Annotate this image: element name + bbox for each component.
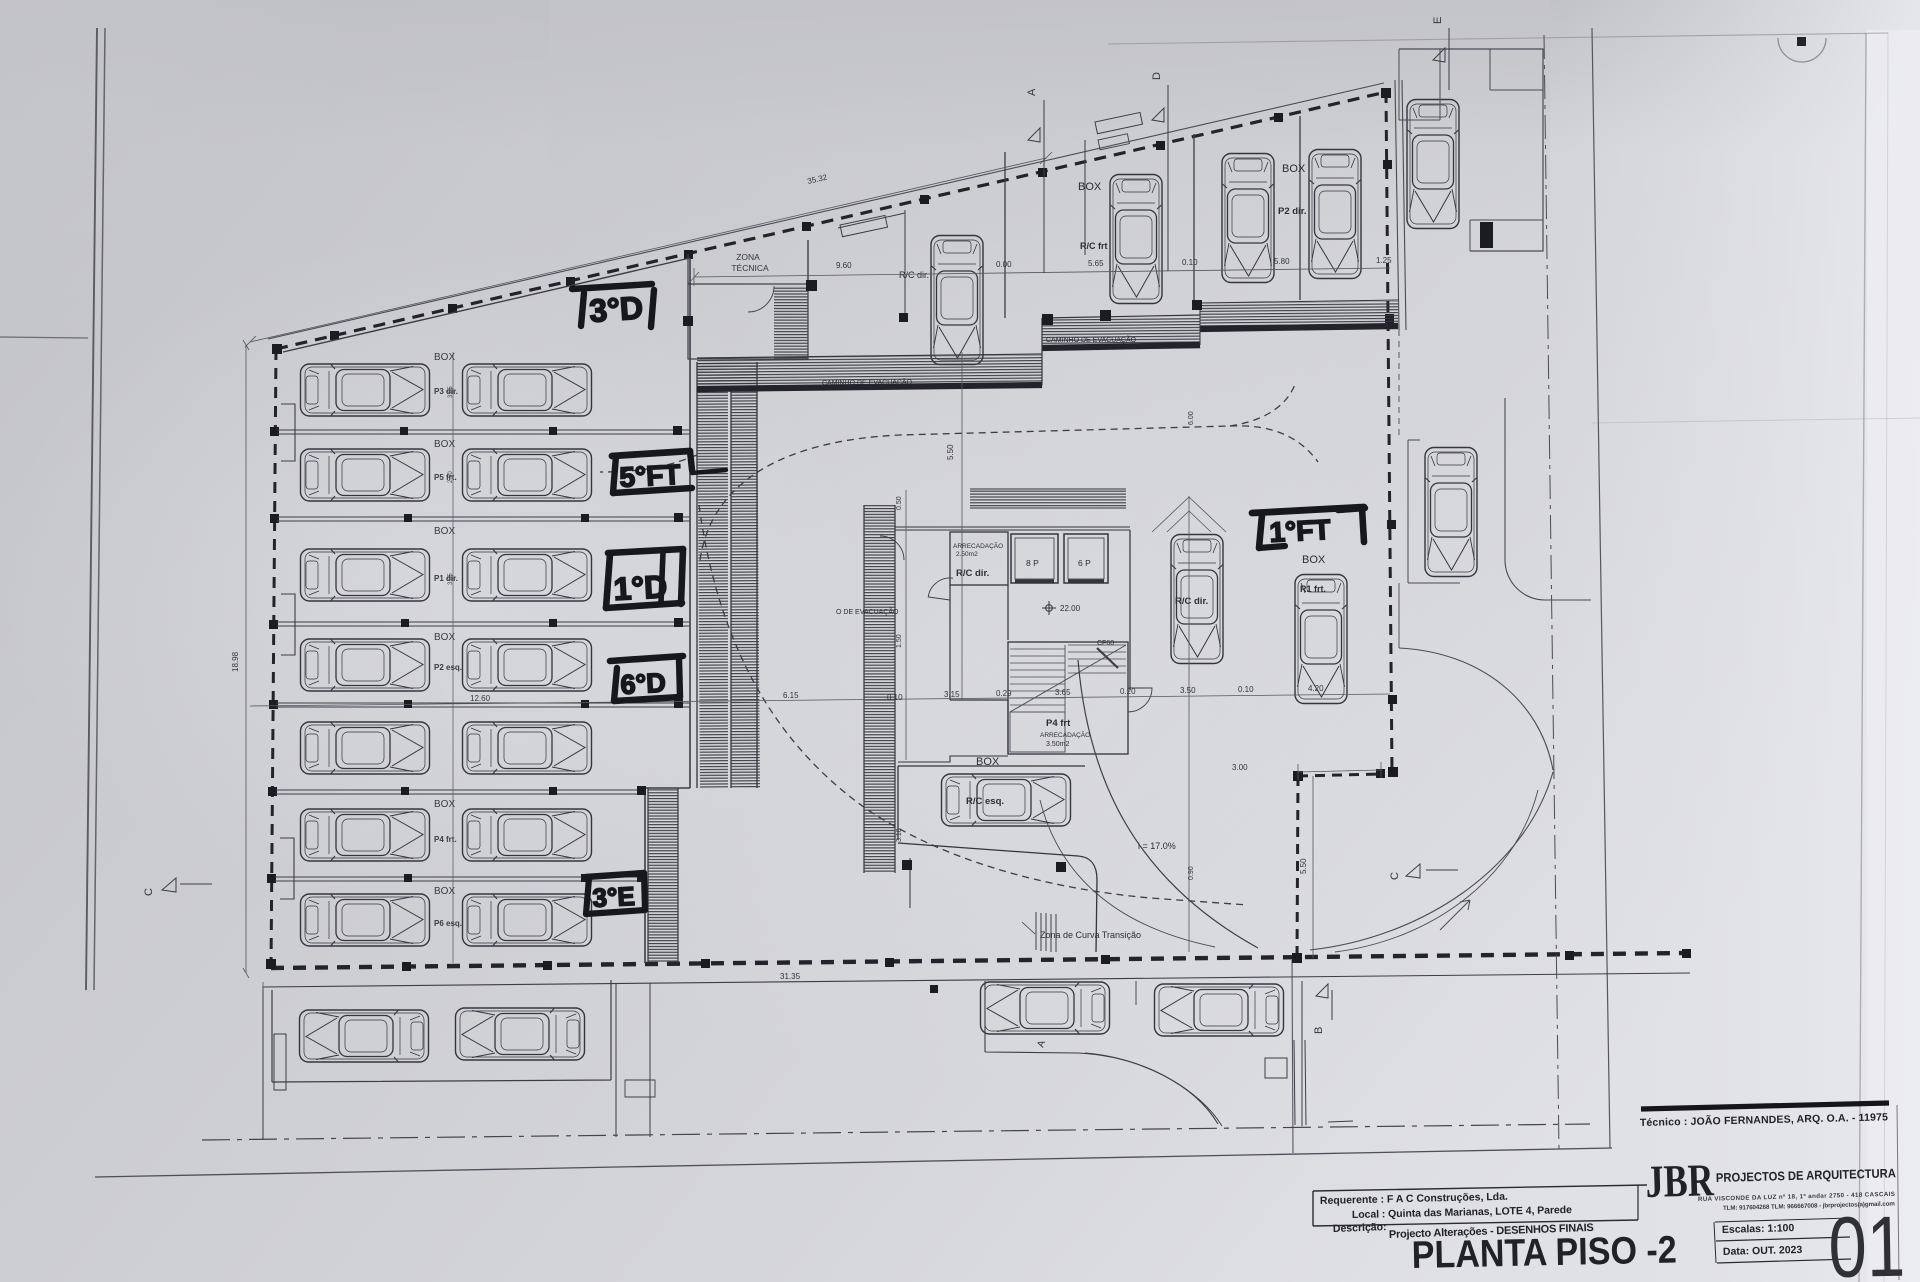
svg-text:Data: OUT. 2023: Data: OUT. 2023 (1723, 1244, 1803, 1258)
svg-text:0.00: 0.00 (996, 260, 1012, 269)
svg-text:0.29: 0.29 (996, 689, 1012, 698)
svg-text:ZONA: ZONA (736, 252, 760, 262)
svg-text:Descrição:: Descrição: (1333, 1221, 1387, 1235)
svg-text:5.50: 5.50 (946, 444, 955, 460)
svg-text:5.80: 5.80 (1274, 257, 1290, 266)
svg-text:4.20: 4.20 (1308, 684, 1324, 693)
svg-text:0.10: 0.10 (1182, 258, 1198, 267)
svg-text:0.90: 0.90 (1188, 866, 1195, 880)
svg-text:ARRECADAÇÃO: ARRECADAÇÃO (953, 541, 1003, 550)
svg-text:5.65: 5.65 (1088, 259, 1104, 268)
svg-text:BOX: BOX (434, 632, 455, 643)
svg-text:BOX: BOX (1282, 163, 1306, 175)
svg-text:6 P: 6 P (1078, 558, 1091, 568)
svg-text:P4 frt: P4 frt (1046, 718, 1071, 729)
svg-text:BOX: BOX (434, 526, 455, 537)
svg-text:E: E (1432, 17, 1444, 24)
svg-text:R/C frt: R/C frt (1080, 241, 1108, 251)
svg-text:CF60: CF60 (1097, 640, 1114, 647)
svg-text:P6 esq.: P6 esq. (434, 919, 462, 928)
svg-text:6°D: 6°D (620, 668, 667, 700)
svg-text:R/C dir.: R/C dir. (899, 270, 929, 280)
svg-text:BOX: BOX (434, 799, 455, 810)
svg-text:BOX: BOX (434, 439, 455, 450)
svg-text:TÉCNICA: TÉCNICA (731, 263, 769, 273)
svg-text:9.60: 9.60 (836, 261, 852, 270)
svg-text:1.50: 1.50 (896, 634, 903, 648)
svg-text:18.98: 18.98 (231, 651, 240, 672)
svg-text:A: A (1026, 88, 1038, 96)
svg-text:ARRECADAÇÃO: ARRECADAÇÃO (1040, 730, 1090, 739)
svg-text:R/C dir.: R/C dir. (1175, 596, 1208, 607)
svg-text:31.35: 31.35 (780, 972, 801, 981)
svg-text:PLANTA PISO -2: PLANTA PISO -2 (1411, 1228, 1677, 1277)
svg-text:1°D: 1°D (613, 568, 669, 607)
svg-text:5°FT: 5°FT (619, 459, 682, 493)
svg-text:BOX: BOX (434, 352, 455, 363)
svg-text:3.50m2: 3.50m2 (1046, 741, 1069, 748)
svg-text:P5 frt.: P5 frt. (434, 473, 457, 482)
svg-text:D: D (1151, 72, 1163, 80)
svg-text:P2 dir.: P2 dir. (1278, 206, 1307, 217)
svg-text:R/C esq.: R/C esq. (966, 796, 1004, 807)
svg-text:R1 frt.: R1 frt. (1300, 584, 1326, 594)
svg-text:0.10: 0.10 (1238, 685, 1254, 694)
svg-text:2.50m2: 2.50m2 (956, 551, 978, 558)
svg-text:3.65: 3.65 (1055, 688, 1071, 697)
svg-text:P4 frt.: P4 frt. (434, 835, 457, 844)
svg-text:8 P: 8 P (1026, 558, 1039, 568)
svg-text:CAMINHO DE EVACUAÇÃO: CAMINHO DE EVACUAÇÃO (1046, 335, 1137, 344)
svg-text:01: 01 (1828, 1198, 1906, 1282)
svg-text:5.50: 5.50 (1299, 858, 1308, 874)
svg-text:3.00: 3.00 (1232, 763, 1248, 772)
svg-text:P3 dir.: P3 dir. (434, 387, 458, 396)
svg-text:12.60: 12.60 (470, 694, 491, 703)
svg-text:0.20: 0.20 (1120, 687, 1136, 696)
svg-text:1.25: 1.25 (1376, 256, 1392, 265)
svg-text:0.50: 0.50 (896, 496, 903, 510)
svg-text:P2 esq.: P2 esq. (434, 663, 462, 672)
svg-text:1°FT: 1°FT (1269, 514, 1332, 548)
svg-text:3°E: 3°E (592, 881, 636, 913)
svg-text:O DE EVACUAÇÃO: O DE EVACUAÇÃO (836, 607, 899, 616)
svg-text:BOX: BOX (1078, 181, 1102, 193)
svg-text:3°D: 3°D (588, 289, 644, 329)
svg-text:C: C (143, 888, 155, 896)
svg-text:3.15: 3.15 (944, 690, 960, 699)
svg-text:Escalas: 1:100: Escalas: 1:100 (1722, 1222, 1795, 1236)
svg-text:3.50: 3.50 (1180, 686, 1196, 695)
svg-text:C: C (1389, 872, 1401, 880)
svg-text:R/C dir.: R/C dir. (956, 568, 989, 579)
svg-text:3.10: 3.10 (896, 828, 903, 842)
svg-text:B: B (1313, 1027, 1325, 1034)
svg-text:BOX: BOX (1302, 554, 1326, 566)
svg-text:22.00: 22.00 (1060, 604, 1081, 613)
svg-text:6.15: 6.15 (783, 691, 799, 700)
svg-text:P1 dir.: P1 dir. (434, 574, 458, 583)
svg-text:6.00: 6.00 (1188, 411, 1195, 425)
svg-text:0.10: 0.10 (887, 693, 903, 702)
svg-text:i = 17.0%: i = 17.0% (1138, 841, 1176, 851)
svg-text:BOX: BOX (434, 886, 455, 897)
svg-text:Zona de Curva Transição: Zona de Curva Transição (1040, 930, 1141, 940)
